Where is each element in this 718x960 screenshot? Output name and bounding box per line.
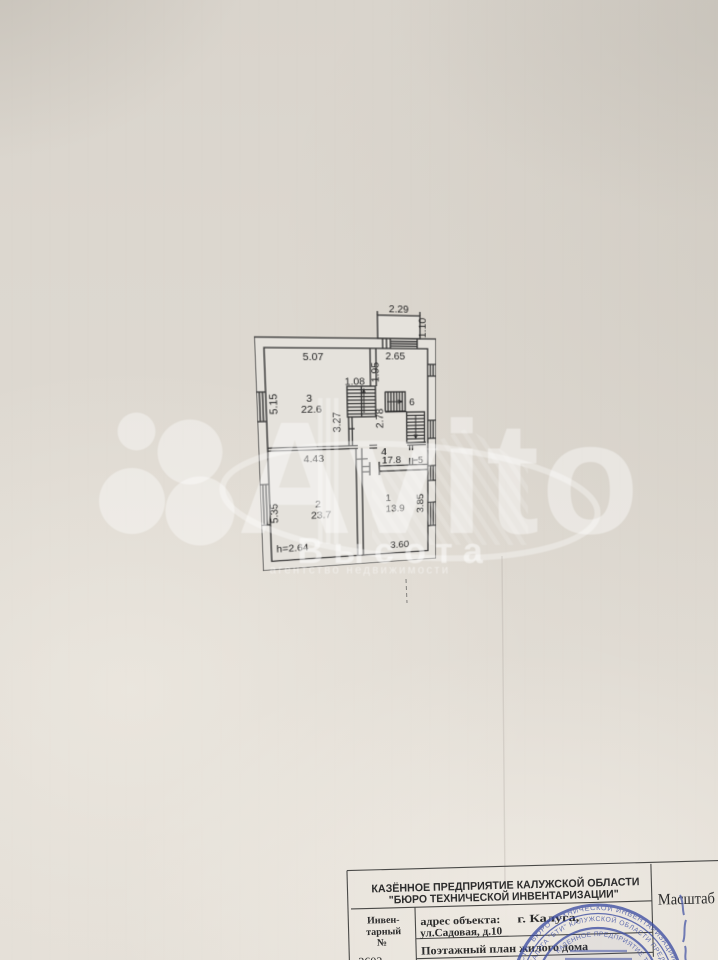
svg-text:ул.Садовая, д.10: ул.Садовая, д.10	[420, 925, 503, 939]
svg-text:Масштаб: Масштаб	[658, 890, 715, 909]
svg-text:№: №	[377, 938, 387, 949]
svg-text:тарный: тарный	[366, 926, 401, 938]
svg-text:2603: 2603	[358, 954, 382, 960]
svg-text:Инвен-: Инвен-	[367, 915, 400, 927]
svg-text:агентство недвижимости: агентство недвижимости	[270, 565, 451, 577]
